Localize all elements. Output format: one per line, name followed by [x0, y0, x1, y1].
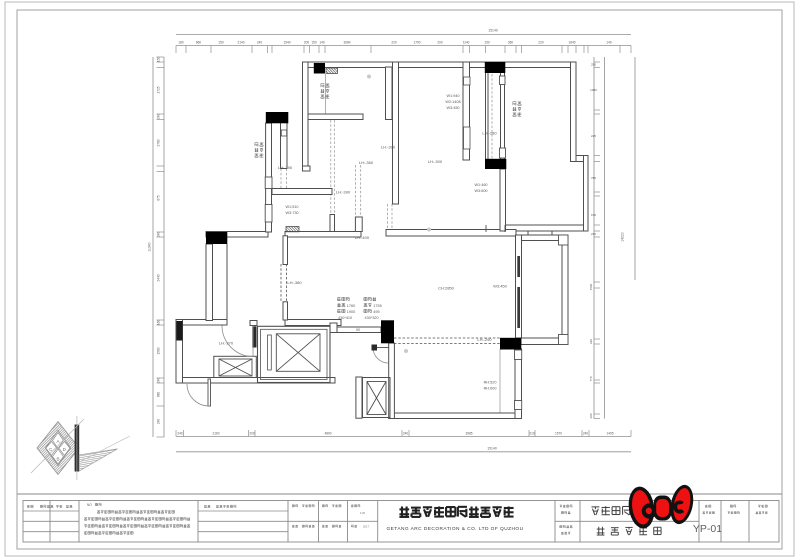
svg-text:200: 200	[437, 40, 443, 44]
svg-text:W2:1408: W2:1408	[445, 100, 460, 104]
svg-text:225: 225	[591, 134, 596, 138]
svg-text:YP-01: YP-01	[693, 523, 722, 535]
svg-text:290: 290	[589, 413, 593, 418]
svg-text:860: 860	[196, 40, 202, 44]
svg-text:LH:-380: LH:-380	[287, 280, 302, 285]
svg-text:150: 150	[311, 40, 317, 44]
svg-text:1140: 1140	[463, 40, 470, 44]
svg-text:290: 290	[589, 339, 593, 344]
svg-text:NO: NO	[87, 503, 92, 507]
svg-text:1755: 1755	[373, 304, 381, 308]
svg-text:2:00: 2:00	[360, 511, 366, 515]
svg-text:RH:520: RH:520	[484, 381, 497, 385]
svg-text:140: 140	[606, 40, 612, 44]
svg-text:3084: 3084	[343, 40, 350, 44]
svg-text:240: 240	[157, 378, 161, 384]
svg-text:430*320: 430*320	[365, 316, 379, 320]
svg-text:1080: 1080	[590, 88, 597, 92]
svg-text:675: 675	[157, 195, 161, 201]
svg-text:GETANG ARC DECORATION &: GETANG ARC DECORATION & CO. LTD OF QUZHO…	[386, 526, 523, 532]
svg-text:W3:450: W3:450	[446, 106, 459, 110]
svg-text:2440: 2440	[157, 274, 161, 281]
svg-text:2017: 2017	[363, 525, 370, 529]
svg-text:B: B	[56, 456, 59, 461]
svg-text:LH:-370: LH:-370	[219, 341, 234, 346]
svg-text:LH:-400: LH:-400	[355, 235, 370, 240]
svg-text:220: 220	[391, 40, 397, 44]
svg-text:W3:730: W3:730	[285, 211, 298, 215]
svg-text:240: 240	[177, 431, 183, 435]
svg-text:LH:-300: LH:-300	[428, 159, 443, 164]
svg-text:230: 230	[591, 232, 596, 236]
svg-text:240: 240	[403, 431, 409, 435]
svg-text:770: 770	[589, 376, 593, 381]
svg-text:1725: 1725	[157, 86, 161, 93]
svg-text:250: 250	[591, 63, 596, 67]
svg-text:200: 200	[304, 40, 310, 44]
svg-text:W1:460: W1:460	[474, 183, 487, 187]
svg-text:W1:510: W1:510	[285, 205, 298, 209]
svg-text:LH:-360: LH:-360	[359, 160, 374, 165]
svg-text:1540: 1540	[283, 40, 290, 44]
svg-text:240: 240	[157, 419, 161, 425]
svg-text:1760: 1760	[347, 304, 355, 308]
svg-text:2160: 2160	[212, 431, 219, 435]
svg-text:180: 180	[178, 40, 184, 44]
svg-text:CH:2850: CH:2850	[438, 286, 455, 291]
svg-text:W3:600: W3:600	[474, 189, 487, 193]
svg-text:LH:-390: LH:-390	[381, 145, 396, 150]
svg-text:W1:940: W1:940	[446, 94, 459, 98]
svg-text:160: 160	[157, 320, 161, 326]
svg-text:220: 220	[538, 40, 544, 44]
svg-text:2140: 2140	[237, 40, 244, 44]
svg-text:430*410: 430*410	[338, 316, 352, 320]
svg-text:W3:450: W3:450	[493, 284, 508, 289]
svg-text:210: 210	[529, 431, 535, 435]
svg-text:150: 150	[591, 213, 596, 217]
svg-text:680: 680	[157, 392, 161, 398]
svg-text:150: 150	[218, 40, 224, 44]
svg-text:150: 150	[484, 40, 490, 44]
svg-text:780: 780	[591, 176, 596, 180]
svg-text:LH:-290: LH:-290	[477, 337, 492, 342]
svg-text:1580: 1580	[157, 347, 161, 354]
svg-text:140: 140	[319, 40, 325, 44]
svg-text:RH:600: RH:600	[484, 387, 497, 391]
svg-text:4890: 4890	[324, 431, 331, 435]
svg-text:14220: 14220	[621, 232, 625, 242]
svg-text:240: 240	[157, 114, 161, 120]
svg-text:11340: 11340	[148, 242, 152, 251]
svg-text:2780: 2780	[157, 139, 161, 146]
svg-text:1405: 1405	[606, 431, 613, 435]
svg-text:1640: 1640	[568, 40, 575, 44]
svg-text:150: 150	[157, 57, 161, 63]
svg-text:495: 495	[373, 310, 379, 314]
svg-text:LH:-390: LH:-390	[336, 190, 351, 195]
svg-text:LH:-280: LH:-280	[482, 131, 497, 136]
svg-text:3985: 3985	[465, 431, 472, 435]
svg-text:360: 360	[508, 40, 514, 44]
svg-text:1900: 1900	[347, 310, 355, 314]
svg-text:LH:-290: LH:-290	[278, 165, 293, 170]
svg-text:240: 240	[583, 431, 589, 435]
svg-text:15140: 15140	[487, 447, 497, 451]
svg-text:90: 90	[356, 328, 360, 332]
svg-text:1500: 1500	[589, 283, 593, 290]
svg-text:240: 240	[257, 40, 263, 44]
svg-text:15140: 15140	[488, 29, 498, 33]
svg-text:240: 240	[157, 232, 161, 238]
svg-text:1570: 1570	[555, 431, 562, 435]
svg-text:1790: 1790	[413, 40, 420, 44]
svg-text:200: 200	[249, 431, 255, 435]
